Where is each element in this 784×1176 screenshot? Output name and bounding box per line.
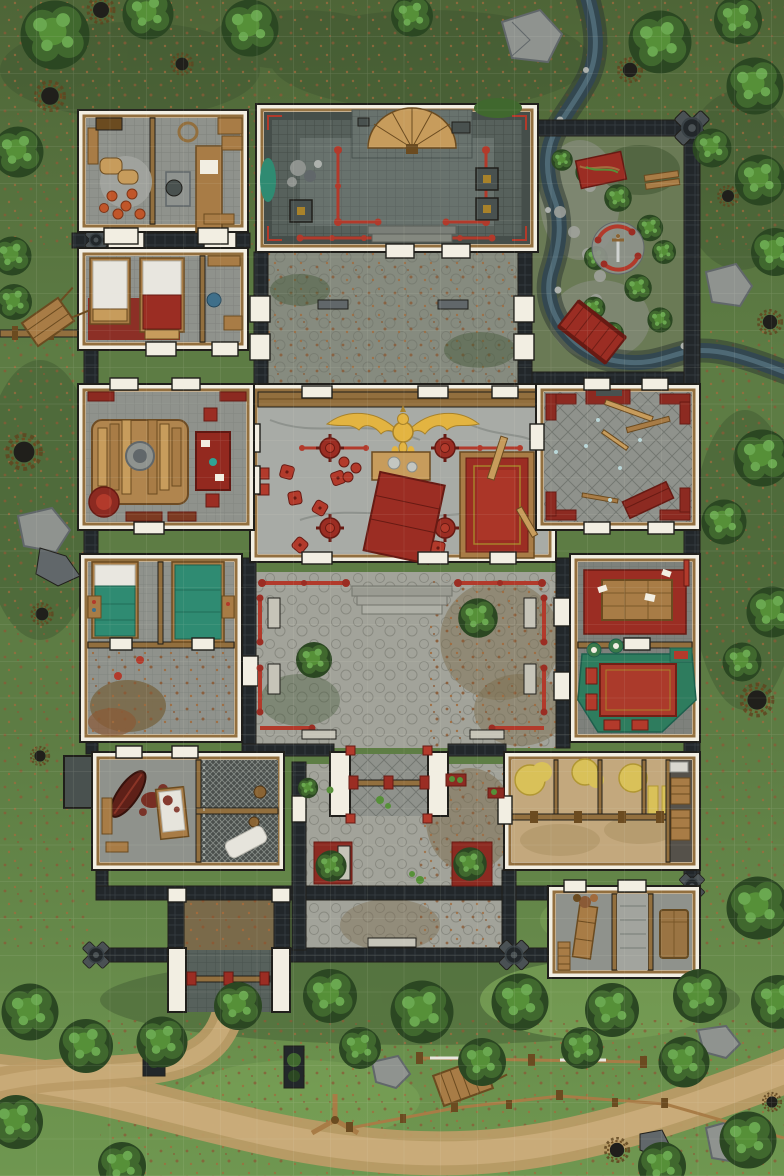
battle-grid (0, 0, 784, 1176)
battle-map-canvas (0, 0, 784, 1176)
battle-map (0, 0, 784, 1176)
